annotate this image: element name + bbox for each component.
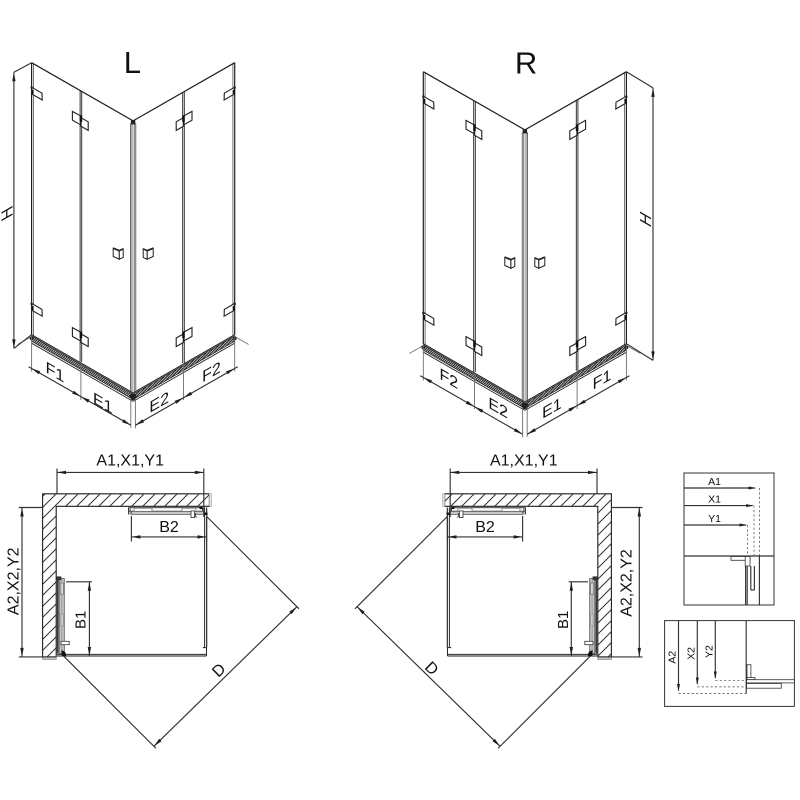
svg-text:Y1: Y1 bbox=[708, 513, 721, 525]
svg-text:Y2: Y2 bbox=[703, 645, 715, 658]
svg-text:R: R bbox=[515, 45, 537, 80]
svg-text:A2: A2 bbox=[667, 651, 679, 664]
svg-text:A2,X2,Y2: A2,X2,Y2 bbox=[618, 549, 635, 617]
svg-text:B2: B2 bbox=[475, 519, 495, 536]
svg-text:A1,X1,Y1: A1,X1,Y1 bbox=[490, 452, 558, 469]
svg-text:B1: B1 bbox=[73, 611, 90, 629]
svg-text:A1,X1,Y1: A1,X1,Y1 bbox=[96, 452, 164, 469]
svg-text:L: L bbox=[124, 45, 141, 80]
svg-text:A1: A1 bbox=[708, 476, 721, 488]
svg-text:B1: B1 bbox=[555, 611, 572, 629]
svg-text:B2: B2 bbox=[159, 519, 179, 536]
svg-text:X2: X2 bbox=[685, 647, 697, 660]
svg-text:A2,X2,Y2: A2,X2,Y2 bbox=[5, 547, 22, 615]
svg-text:X1: X1 bbox=[708, 494, 721, 506]
